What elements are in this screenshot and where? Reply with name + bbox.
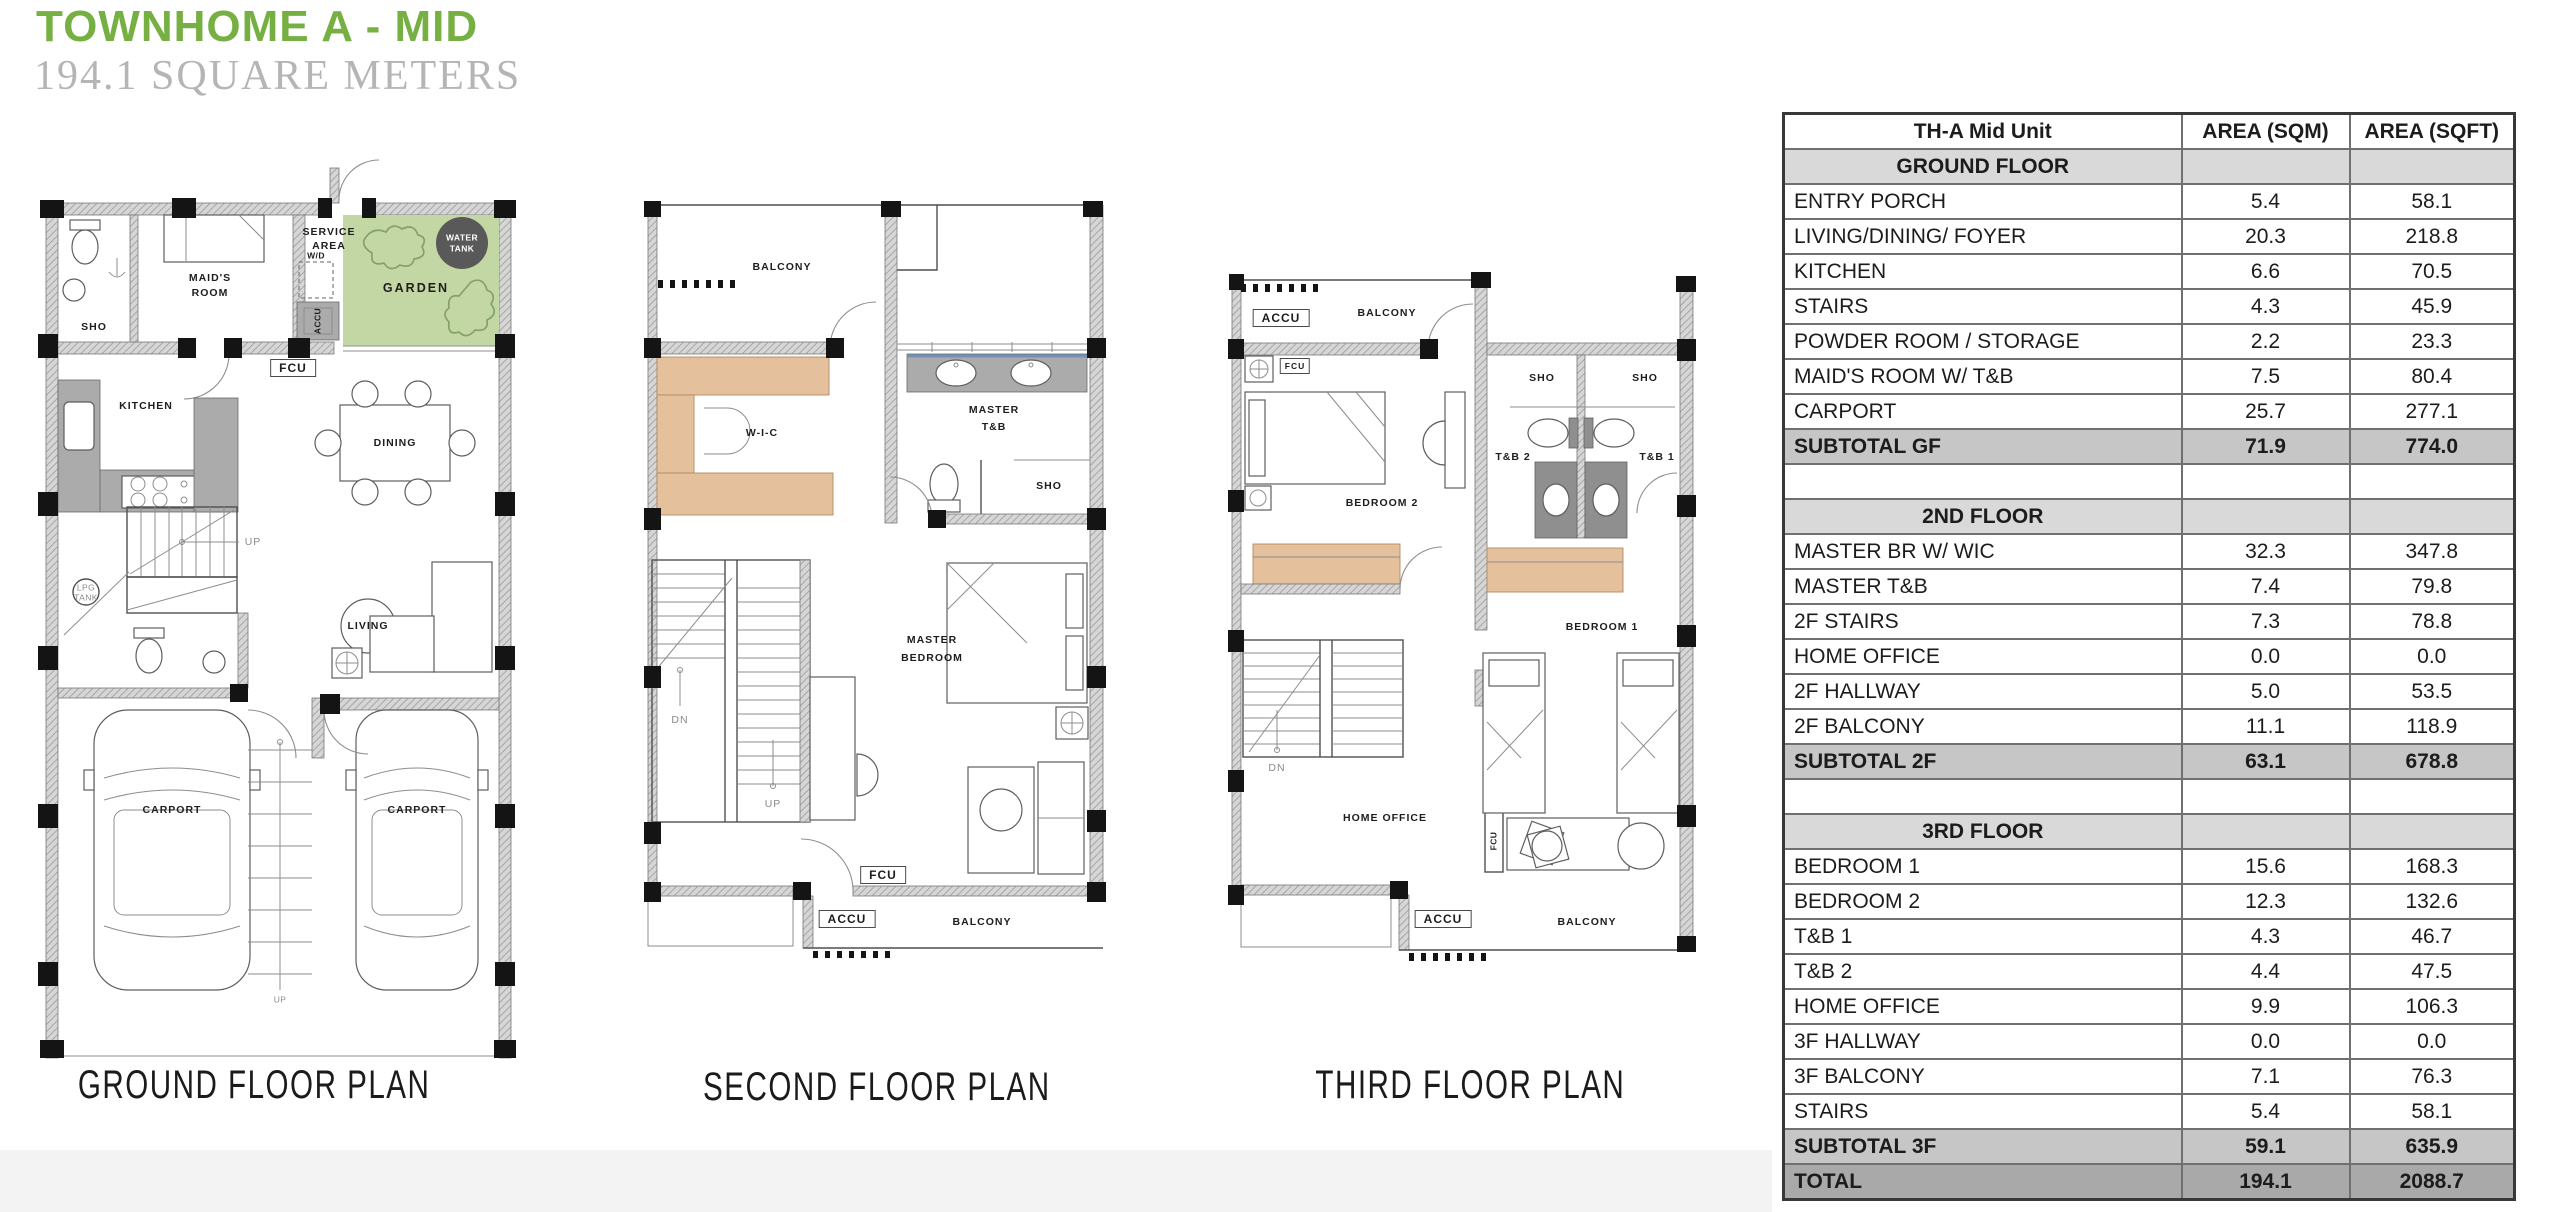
- caption-second-floor: SECOND FLOOR PLAN: [617, 1065, 1137, 1110]
- cell-area-sqm: [2182, 149, 2350, 184]
- cell-label: 2F HALLWAY: [1784, 674, 2182, 709]
- cell-area-sqft: 277.1: [2350, 394, 2515, 429]
- bed-icon: [947, 563, 1087, 703]
- cell-label: SUBTOTAL 3F: [1784, 1129, 2182, 1164]
- table-row-maid-s-room-w-t-b: MAID'S ROOM W/ T&B7.580.4: [1784, 359, 2515, 394]
- side-table: [980, 789, 1022, 831]
- cell-label: HOME OFFICE: [1784, 639, 2182, 674]
- cell-label: T&B 2: [1784, 954, 2182, 989]
- desk: [1445, 392, 1465, 488]
- cell-area-sqft: 2088.7: [2350, 1164, 2515, 1200]
- page-subtitle: 194.1 SQUARE METERS: [34, 52, 521, 100]
- cell-area-sqm: 59.1: [2182, 1129, 2350, 1164]
- room-label-balcony-top: BALCONY: [1358, 307, 1417, 319]
- room-label-maids-2: ROOM: [192, 287, 229, 299]
- cell-label: [1784, 464, 2182, 499]
- room-label-wic: W-I-C: [746, 427, 778, 439]
- cell-area-sqm: 15.6: [2182, 849, 2350, 884]
- label-lpg-1: LPG: [77, 584, 95, 593]
- car-icon: [84, 710, 260, 990]
- label-water-tank-1: WATER: [446, 234, 478, 243]
- room-label-garden: GARDEN: [383, 281, 449, 295]
- table-row-entry-porch: ENTRY PORCH5.458.1: [1784, 184, 2515, 219]
- label-fcu: FCU: [270, 359, 316, 377]
- label-accu: ACCU: [819, 910, 876, 928]
- label-up-entry: UP: [274, 996, 287, 1005]
- stairs: [652, 560, 810, 822]
- cell-area-sqft: 58.1: [2350, 1094, 2515, 1129]
- cell-label: SUBTOTAL 2F: [1784, 744, 2182, 779]
- table-row-spacer: [1784, 779, 2515, 814]
- cell-area-sqft: 80.4: [2350, 359, 2515, 394]
- label-wd: W/D: [307, 252, 325, 261]
- third-floor-plan: ACCU BALCONY FCU SHO SHO T&B 2 T&B 1 BED…: [1225, 110, 1715, 1070]
- room-label-bedroom1: BEDROOM 1: [1566, 621, 1639, 633]
- cell-label: MASTER BR W/ WIC: [1784, 534, 2182, 569]
- bottom-band: [0, 1150, 1772, 1212]
- fan-icon: [1245, 356, 1273, 382]
- cell-area-sqm: 5.4: [2182, 184, 2350, 219]
- cell-area-sqm: [2182, 499, 2350, 534]
- desk: [810, 677, 855, 820]
- label-up: UP: [245, 536, 262, 548]
- table-row-home-office: HOME OFFICE0.00.0: [1784, 639, 2515, 674]
- cell-label: STAIRS: [1784, 1094, 2182, 1129]
- cell-area-sqft: 53.5: [2350, 674, 2515, 709]
- cell-label: STAIRS: [1784, 289, 2182, 324]
- cell-area-sqft: 58.1: [2350, 184, 2515, 219]
- table-row-t-b-2: T&B 24.447.5: [1784, 954, 2515, 989]
- page-title: TOWNHOME A - MID: [36, 2, 478, 52]
- cell-area-sqft: 79.8: [2350, 569, 2515, 604]
- chair: [857, 754, 878, 796]
- cell-area-sqm: [2182, 814, 2350, 849]
- cell-label: BEDROOM 1: [1784, 849, 2182, 884]
- cell-area-sqft: [2350, 464, 2515, 499]
- cell-label: HOME OFFICE: [1784, 989, 2182, 1024]
- cell-area-sqm: 11.1: [2182, 709, 2350, 744]
- cell-label: POWDER ROOM / STORAGE: [1784, 324, 2182, 359]
- cell-label: GROUND FLOOR: [1784, 149, 2182, 184]
- label-fcu-vertical: FCU: [1490, 832, 1499, 851]
- caption-third-floor: THIRD FLOOR PLAN: [1210, 1063, 1730, 1108]
- label-dn: DN: [671, 714, 688, 726]
- second-floor-plan-drawing: [632, 110, 1122, 1070]
- cell-area-sqft: 0.0: [2350, 639, 2515, 674]
- cell-area-sqft: [2350, 149, 2515, 184]
- room-label-bedroom2: BEDROOM 2: [1346, 497, 1419, 509]
- cell-label: T&B 1: [1784, 919, 2182, 954]
- toilet-icon: [70, 220, 100, 264]
- table-row-t-b-1: T&B 14.346.7: [1784, 919, 2515, 954]
- cell-area-sqft: 118.9: [2350, 709, 2515, 744]
- cell-area-sqft: [2350, 499, 2515, 534]
- label-fcu: FCU: [860, 866, 906, 884]
- cell-area-sqft: 132.6: [2350, 884, 2515, 919]
- cell-area-sqm: 4.4: [2182, 954, 2350, 989]
- room-label-sho-left: SHO: [1529, 372, 1555, 384]
- table-row-stairs: STAIRS4.345.9: [1784, 289, 2515, 324]
- room-label-sho-right: SHO: [1632, 372, 1658, 384]
- cell-label: MASTER T&B: [1784, 569, 2182, 604]
- toilet-icon: [1584, 418, 1634, 448]
- living-set: [341, 562, 492, 672]
- table-row-living-dining-foyer: LIVING/DINING/ FOYER20.3218.8: [1784, 219, 2515, 254]
- table-row-2f-hallway: 2F HALLWAY5.053.5: [1784, 674, 2515, 709]
- cell-area-sqft: 774.0: [2350, 429, 2515, 464]
- cell-label: TOTAL: [1784, 1164, 2182, 1200]
- vanity-counter: [907, 354, 1087, 392]
- cell-label: KITCHEN: [1784, 254, 2182, 289]
- table-row-stairs: STAIRS5.458.1: [1784, 1094, 2515, 1129]
- closet: [1487, 548, 1623, 592]
- label-up: UP: [765, 798, 782, 810]
- cell-area-sqft: 0.0: [2350, 1024, 2515, 1059]
- room-label-carport-left: CARPORT: [143, 804, 202, 816]
- round-table: [1618, 823, 1664, 869]
- room-label-carport-right: CARPORT: [388, 804, 447, 816]
- label-fcu-top: FCU: [1280, 358, 1310, 374]
- column-header-unit: TH-A Mid Unit: [1784, 114, 2182, 150]
- label-dn: DN: [1268, 762, 1285, 774]
- cell-area-sqm: 4.3: [2182, 289, 2350, 324]
- cell-label: LIVING/DINING/ FOYER: [1784, 219, 2182, 254]
- table-row-2f-stairs: 2F STAIRS7.378.8: [1784, 604, 2515, 639]
- bed-icon: [1617, 653, 1679, 813]
- table-row-carport: CARPORT25.7277.1: [1784, 394, 2515, 429]
- cell-area-sqft: 23.3: [2350, 324, 2515, 359]
- sink-icon: [203, 651, 225, 673]
- room-label-sho: SHO: [1036, 480, 1062, 492]
- bed-icon: [1483, 653, 1545, 813]
- room-label-dining: DINING: [374, 437, 417, 449]
- room-label-master-br-1: MASTER: [907, 634, 957, 646]
- table-row-2f-balcony: 2F BALCONY11.1118.9: [1784, 709, 2515, 744]
- room-label-balcony-top: BALCONY: [753, 261, 812, 273]
- entry-steps: [248, 710, 368, 990]
- cell-area-sqm: 6.6: [2182, 254, 2350, 289]
- room-label-living: LIVING: [347, 620, 388, 632]
- cell-label: SUBTOTAL GF: [1784, 429, 2182, 464]
- room-label-home-office: HOME OFFICE: [1343, 812, 1427, 824]
- room-label-tb2: T&B 2: [1495, 451, 1530, 463]
- table-row-master-t-b: MASTER T&B7.479.8: [1784, 569, 2515, 604]
- cell-area-sqm: [2182, 779, 2350, 814]
- column-header-sqm: AREA (SQM): [2182, 114, 2350, 150]
- table-row-bedroom-2: BEDROOM 212.3132.6: [1784, 884, 2515, 919]
- label-lpg-2: TANK: [74, 594, 98, 603]
- cell-area-sqft: 106.3: [2350, 989, 2515, 1024]
- cell-area-sqm: 20.3: [2182, 219, 2350, 254]
- cell-label: 2F BALCONY: [1784, 709, 2182, 744]
- room-label-tb1: T&B 1: [1639, 451, 1674, 463]
- table-row-subtotal-2f: SUBTOTAL 2F63.1678.8: [1784, 744, 2515, 779]
- cell-area-sqft: 70.5: [2350, 254, 2515, 289]
- table-row-2nd-floor: 2ND FLOOR: [1784, 499, 2515, 534]
- cell-area-sqft: 45.9: [2350, 289, 2515, 324]
- cell-area-sqm: 5.0: [2182, 674, 2350, 709]
- cell-label: MAID'S ROOM W/ T&B: [1784, 359, 2182, 394]
- label-accu-vertical: ACCU: [314, 308, 323, 334]
- bed-icon: [164, 215, 264, 262]
- cell-area-sqm: 5.4: [2182, 1094, 2350, 1129]
- label-accu-top: ACCU: [1253, 309, 1310, 327]
- cell-area-sqft: 76.3: [2350, 1059, 2515, 1094]
- table-row-spacer: [1784, 464, 2515, 499]
- cell-area-sqm: 194.1: [2182, 1164, 2350, 1200]
- table-row-master-br-w-wic: MASTER BR W/ WIC32.3347.8: [1784, 534, 2515, 569]
- cell-area-sqm: 7.4: [2182, 569, 2350, 604]
- chair: [1423, 421, 1445, 465]
- fan-icon: [1056, 707, 1088, 739]
- table-row-kitchen: KITCHEN6.670.5: [1784, 254, 2515, 289]
- cell-area-sqm: 2.2: [2182, 324, 2350, 359]
- cell-area-sqft: 168.3: [2350, 849, 2515, 884]
- column-header-sqft: AREA (SQFT): [2350, 114, 2515, 150]
- table-row-3f-hallway: 3F HALLWAY0.00.0: [1784, 1024, 2515, 1059]
- cell-area-sqm: 32.3: [2182, 534, 2350, 569]
- ground-floor-plan-drawing: [34, 110, 524, 1070]
- cell-label: 3RD FLOOR: [1784, 814, 2182, 849]
- cell-area-sqm: 7.5: [2182, 359, 2350, 394]
- closet: [1253, 544, 1400, 584]
- table-row-bedroom-1: BEDROOM 115.6168.3: [1784, 849, 2515, 884]
- toilet-icon: [928, 464, 960, 512]
- cell-label: 2F STAIRS: [1784, 604, 2182, 639]
- sink-icon: [63, 279, 85, 301]
- cell-area-sqft: [2350, 779, 2515, 814]
- cell-area-sqm: [2182, 464, 2350, 499]
- table-row-subtotal-gf: SUBTOTAL GF71.9774.0: [1784, 429, 2515, 464]
- cell-label: 3F HALLWAY: [1784, 1024, 2182, 1059]
- area-table: TH-A Mid Unit AREA (SQM) AREA (SQFT) GRO…: [1782, 112, 2516, 1201]
- cell-area-sqm: 7.3: [2182, 604, 2350, 639]
- cell-area-sqft: [2350, 814, 2515, 849]
- table-row-powder-room-storage: POWDER ROOM / STORAGE2.223.3: [1784, 324, 2515, 359]
- cell-area-sqm: 63.1: [2182, 744, 2350, 779]
- cell-area-sqft: 678.8: [2350, 744, 2515, 779]
- room-label-service-1: SERVICE: [303, 226, 356, 238]
- fan-icon: [1245, 486, 1271, 510]
- stairs: [1243, 640, 1403, 757]
- table-header-row: TH-A Mid Unit AREA (SQM) AREA (SQFT): [1784, 114, 2515, 150]
- cell-area-sqft: 47.5: [2350, 954, 2515, 989]
- room-label-balcony-bottom: BALCONY: [953, 916, 1012, 928]
- cell-area-sqm: 4.3: [2182, 919, 2350, 954]
- table-row-3rd-floor: 3RD FLOOR: [1784, 814, 2515, 849]
- room-label-balcony-bottom: BALCONY: [1558, 916, 1617, 928]
- table-row-subtotal-3f: SUBTOTAL 3F59.1635.9: [1784, 1129, 2515, 1164]
- cell-area-sqm: 25.7: [2182, 394, 2350, 429]
- cell-label: 2ND FLOOR: [1784, 499, 2182, 534]
- stairs: [127, 507, 239, 613]
- cell-label: 3F BALCONY: [1784, 1059, 2182, 1094]
- table-row-home-office: HOME OFFICE9.9106.3: [1784, 989, 2515, 1024]
- cell-area-sqft: 78.8: [2350, 604, 2515, 639]
- cell-label: CARPORT: [1784, 394, 2182, 429]
- caption-ground-floor: GROUND FLOOR PLAN: [0, 1063, 514, 1108]
- label-water-tank-2: TANK: [450, 245, 475, 254]
- cell-area-sqft: 347.8: [2350, 534, 2515, 569]
- cell-label: [1784, 779, 2182, 814]
- cell-area-sqft: 218.8: [2350, 219, 2515, 254]
- cell-area-sqft: 46.7: [2350, 919, 2515, 954]
- room-label-master-tb-2: T&B: [982, 421, 1007, 433]
- label-accu-bottom: ACCU: [1415, 910, 1472, 928]
- cell-area-sqm: 0.0: [2182, 1024, 2350, 1059]
- ground-floor-plan: SHO MAID'S ROOM SERVICE AREA W/D ACCU GA…: [34, 110, 524, 1070]
- room-label-kitchen: KITCHEN: [119, 400, 173, 412]
- cell-area-sqft: 635.9: [2350, 1129, 2515, 1164]
- cell-label: BEDROOM 2: [1784, 884, 2182, 919]
- room-label-master-tb-1: MASTER: [969, 404, 1019, 416]
- room-label-sho: SHO: [81, 321, 107, 333]
- car-icon: [346, 710, 488, 990]
- table-row-ground-floor: GROUND FLOOR: [1784, 149, 2515, 184]
- toilet-icon: [1528, 418, 1578, 448]
- second-floor-plan: BALCONY W-I-C MASTER T&B SHO DN UP MASTE…: [632, 110, 1122, 1070]
- table-row-total: TOTAL194.12088.7: [1784, 1164, 2515, 1200]
- cell-area-sqm: 0.0: [2182, 639, 2350, 674]
- bed-icon: [1245, 392, 1385, 484]
- cell-area-sqm: 71.9: [2182, 429, 2350, 464]
- cell-area-sqm: 12.3: [2182, 884, 2350, 919]
- room-label-master-br-2: BEDROOM: [901, 652, 963, 664]
- table-row-3f-balcony: 3F BALCONY7.176.3: [1784, 1059, 2515, 1094]
- toilet-icon: [134, 628, 164, 673]
- cell-area-sqm: 9.9: [2182, 989, 2350, 1024]
- cell-label: ENTRY PORCH: [1784, 184, 2182, 219]
- room-label-maids-1: MAID'S: [189, 272, 231, 284]
- cell-area-sqm: 7.1: [2182, 1059, 2350, 1094]
- fan-icon: [332, 648, 362, 678]
